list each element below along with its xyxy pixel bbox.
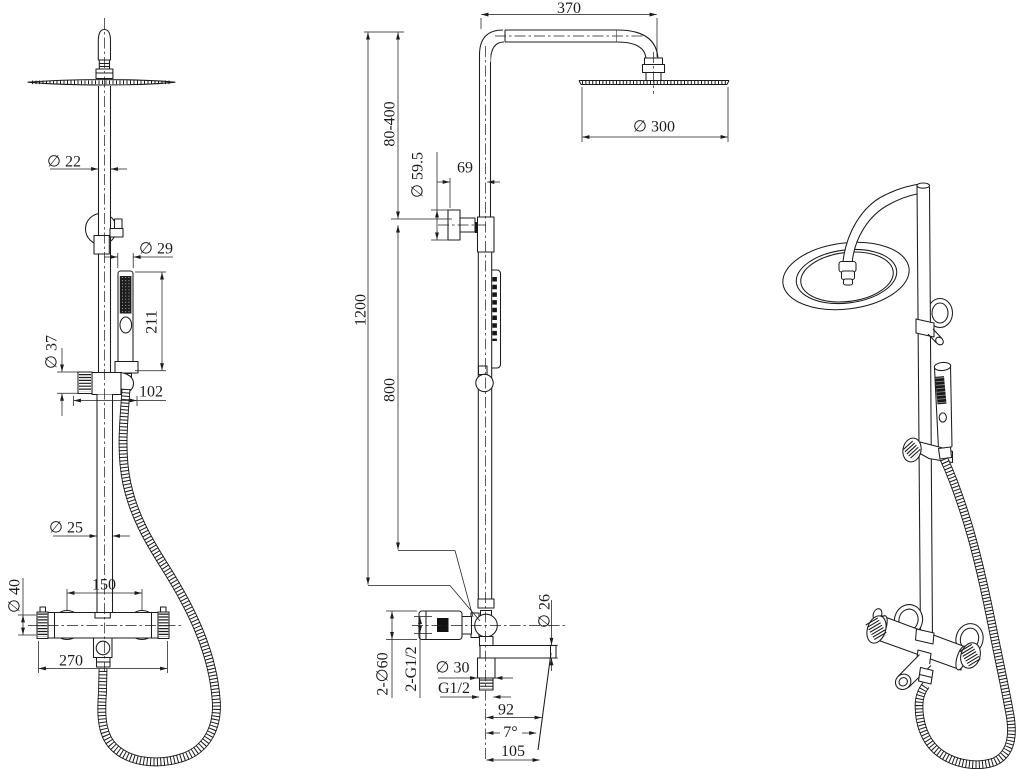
hand-shower-holder <box>115 362 138 374</box>
dim-side-height-adjust: 80-400 <box>382 101 399 146</box>
riser-pipe-iso <box>917 183 933 641</box>
dim-side-outlet-thread: G1/2 <box>438 680 470 697</box>
dim-side-lower-height: 800 <box>382 378 399 402</box>
hand-shower-front <box>118 271 133 372</box>
hand-shower-iso <box>934 362 952 450</box>
rain-shower-head-side <box>579 81 729 85</box>
dim-front-pipe-diameter: ∅ 22 <box>47 154 81 171</box>
dim-side-escutcheon-count: 2-∅60 <box>375 652 392 695</box>
dim-front-slider-diameter: ∅ 37 <box>44 335 61 369</box>
slider-knob-side <box>476 374 493 391</box>
dim-side-spout-angle: 7° <box>503 724 517 741</box>
side-view: 370 80-400 ∅ 59.5 69 1200 800 ∅ 300 ∅ 26… <box>353 0 730 762</box>
dim-side-arm-reach: 370 <box>557 0 581 17</box>
dim-side-spout-total: 105 <box>501 743 525 760</box>
dim-side-spout-diameter: ∅ 26 <box>537 594 554 628</box>
dim-side-spout-projection: 92 <box>498 702 514 719</box>
shower-arm-side <box>480 30 659 62</box>
dim-front-valve-diameter: ∅ 40 <box>7 579 24 613</box>
dim-front-handshower-diameter: ∅ 29 <box>139 241 173 258</box>
dim-side-inlet-thread: 2-G1/2 <box>403 646 420 691</box>
technical-drawing-page: ∅ 22 ∅ 29 211 ∅ 37 102 ∅ 25 ∅ 40 150 270 <box>0 0 1024 769</box>
perspective-view <box>779 183 1011 765</box>
dim-front-slider-offset: 102 <box>139 384 163 401</box>
dim-front-inlet-spacing: 150 <box>92 577 116 594</box>
dim-side-total-height: 1200 <box>353 294 370 326</box>
dim-front-riser-diameter: ∅ 25 <box>49 520 83 537</box>
mixer-valve-front <box>37 607 169 667</box>
shower-hose-front <box>102 389 217 762</box>
dim-front-handshower-length: 211 <box>144 310 161 333</box>
shower-system-drawing: ∅ 22 ∅ 29 211 ∅ 37 102 ∅ 25 ∅ 40 150 270 <box>0 0 1024 769</box>
dim-side-outlet-diameter: ∅ 30 <box>436 660 470 677</box>
front-geometry <box>28 30 216 762</box>
dim-side-flange-diameter: ∅ 59.5 <box>410 152 427 198</box>
side-geometry <box>419 30 729 750</box>
rain-shower-head-front <box>28 80 175 85</box>
bracket-clamp <box>94 236 109 255</box>
shower-hose-iso <box>919 459 1011 765</box>
front-view: ∅ 22 ∅ 29 211 ∅ 37 102 ∅ 25 ∅ 40 150 270 <box>7 18 217 762</box>
dim-front-valve-width: 270 <box>59 653 83 670</box>
dim-side-wall-offset: 69 <box>457 160 473 177</box>
dim-side-head-diameter: ∅ 300 <box>633 119 675 136</box>
